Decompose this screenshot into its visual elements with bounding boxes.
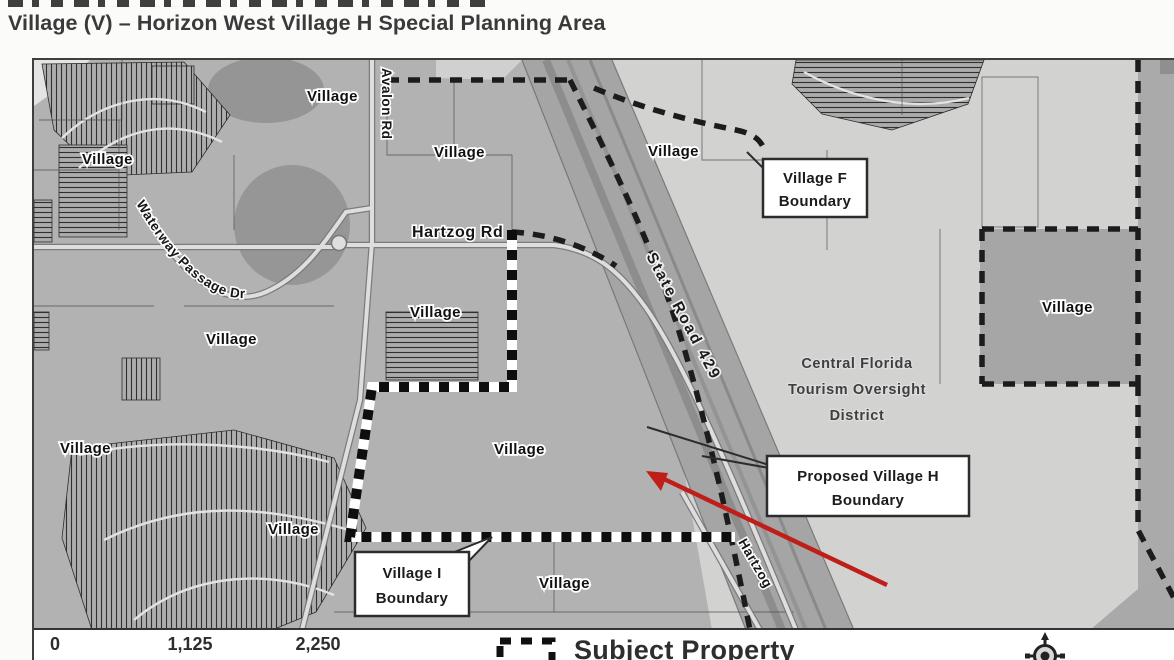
scale-tick-2250: 2,250 [282,634,354,655]
district-line3: District [830,408,885,424]
district-line2: Tourism Oversight [788,382,926,398]
village-i-line2: Boundary [376,590,449,607]
avalon-rd-label: Avalon Rd [379,68,394,140]
subject-property-legend-label: Subject Property [574,635,795,660]
village-f-callout: Village F Boundary [747,152,867,217]
village-i-line1: Village I [382,565,441,582]
village-label: Village [268,521,319,538]
scale-tick-0: 0 [50,634,60,655]
page-title: Village (V) – Horizon West Village H Spe… [8,11,908,36]
village-label: Village [648,143,699,160]
village-label: Village [206,331,257,348]
village-label: Village [434,144,485,161]
village-label: Village [410,304,461,321]
cropped-heading-remnant [8,0,486,7]
village-label: Village [307,88,358,105]
village-label: Village [82,151,133,168]
planning-area-map: Village Village Village Village Village … [34,60,1174,630]
village-f-line2: Boundary [779,193,852,210]
village-label: Village [60,440,111,457]
district-line1: Central Florida [801,356,913,372]
proposed-h-line1: Proposed Village H [797,468,939,485]
village-label: Village [494,441,545,458]
subject-property-swatch-icon [496,637,558,660]
hartzog-rd-label: Hartzog Rd [412,224,503,241]
scale-tick-1125: 1,125 [154,634,226,655]
village-label: Village [1042,299,1093,316]
village-f-line1: Village F [783,170,847,187]
map-figure: Village Village Village Village Village … [32,58,1174,660]
village-label: Village [539,575,590,592]
roundabout [332,236,347,251]
compass-rose-icon [1022,631,1068,660]
map-footer: 0 1,125 2,250 Subject Property [34,628,1174,660]
proposed-h-line2: Boundary [832,492,905,509]
